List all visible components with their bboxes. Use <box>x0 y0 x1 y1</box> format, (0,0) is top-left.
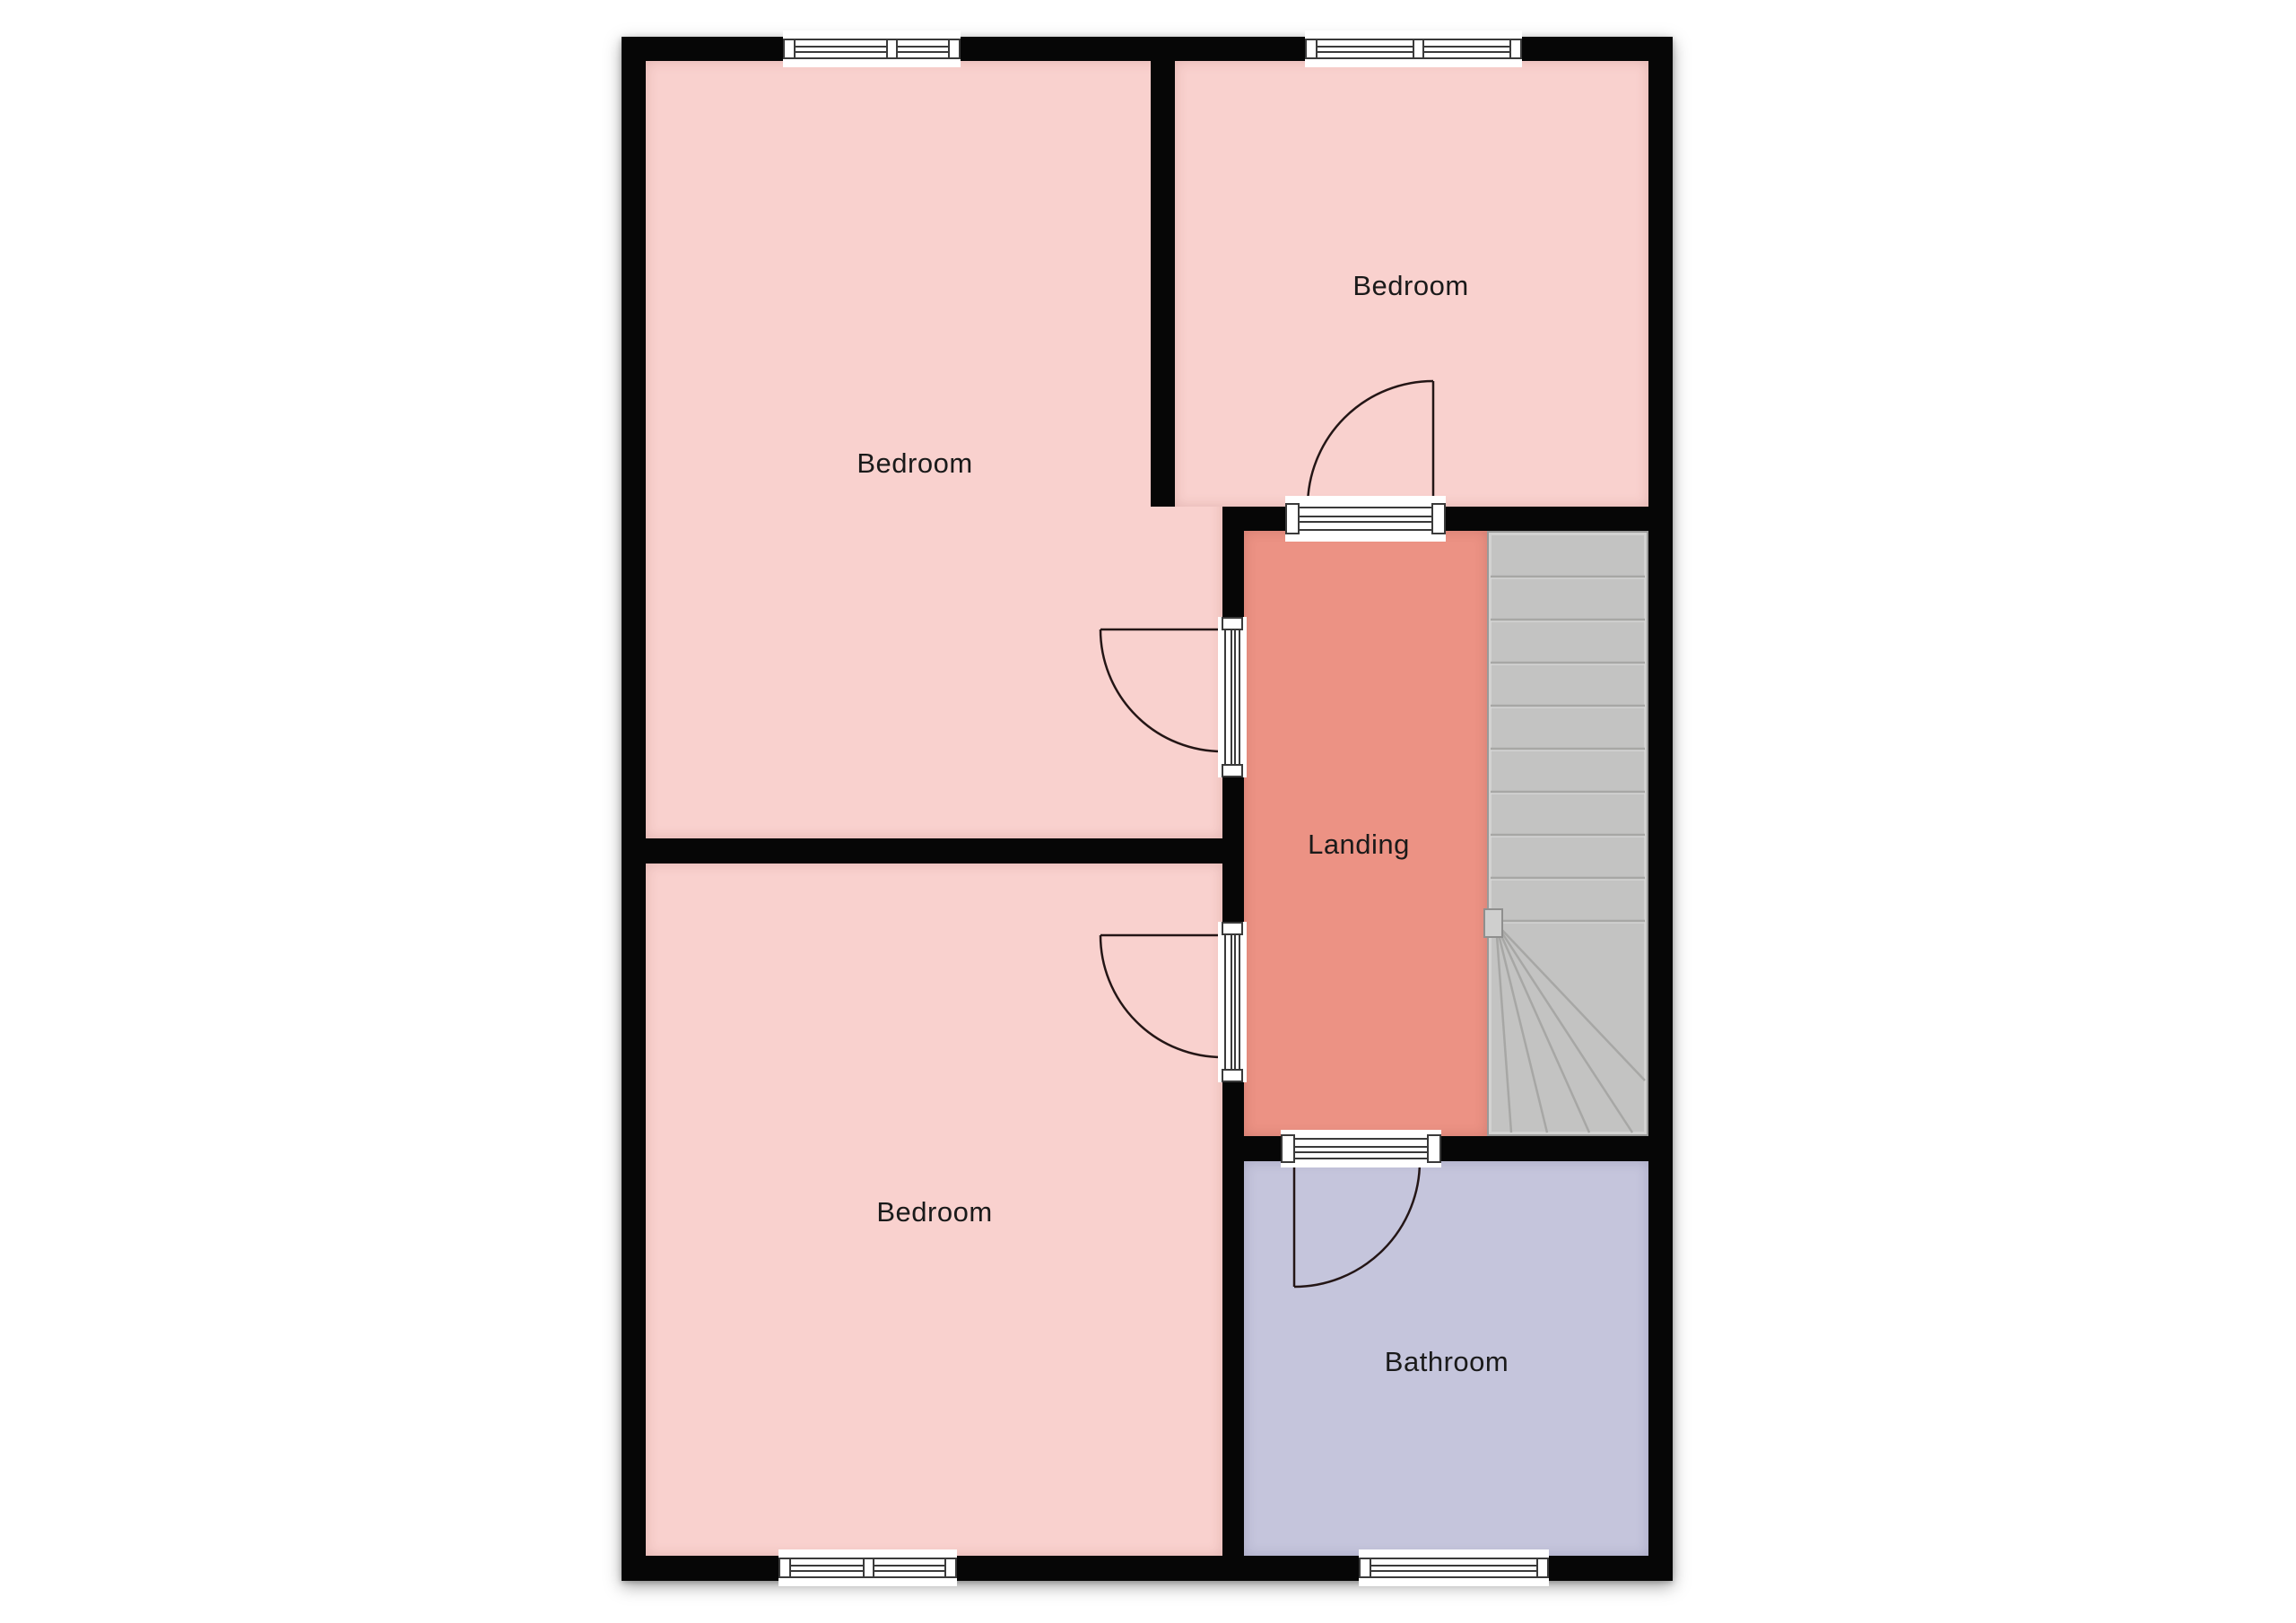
floorplan-canvas: Bedroom Bedroom Bedroom Landing Bathroom <box>0 0 2296 1623</box>
label-landing: Landing <box>1308 829 1410 861</box>
window-bedroom-top-right <box>1305 30 1522 67</box>
door-frame-bathroom <box>1281 1130 1441 1167</box>
label-bedroom-top-left: Bedroom <box>857 447 972 480</box>
door-frame-bedroom-top-left <box>1218 617 1247 777</box>
window-mullion <box>1413 39 1424 59</box>
window-bathroom <box>1359 1549 1549 1586</box>
staircase <box>1487 531 1648 1136</box>
floorplan: Bedroom Bedroom Bedroom Landing Bathroom <box>622 37 1673 1581</box>
window-mullion <box>863 1558 874 1578</box>
window-bedroom-top-left <box>783 30 961 67</box>
door-frame-bedroom-bottom-left <box>1218 922 1247 1082</box>
window-mullion <box>886 39 898 59</box>
label-bathroom: Bathroom <box>1385 1346 1509 1378</box>
window-bedroom-bottom-left <box>778 1549 957 1586</box>
label-bedroom-bottom-left: Bedroom <box>876 1196 992 1228</box>
label-bedroom-top-right: Bedroom <box>1352 270 1468 302</box>
door-frame-bedroom-top-right <box>1285 496 1446 542</box>
